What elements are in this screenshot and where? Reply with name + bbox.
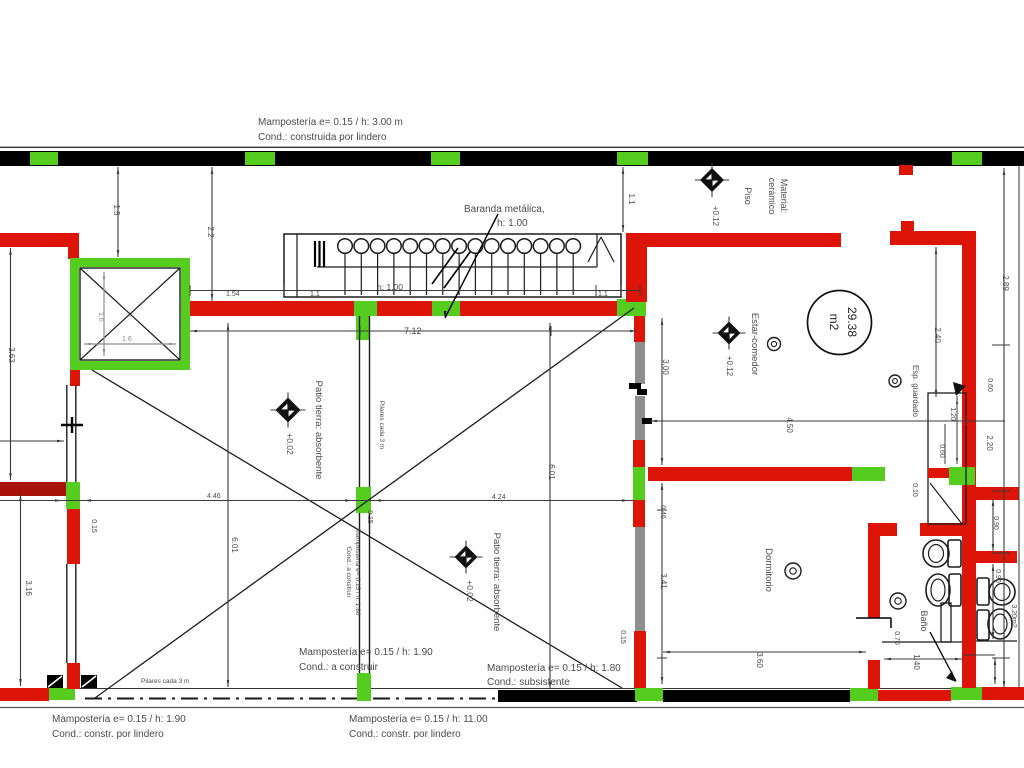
svg-text:Mampostería e= 0.15 / h: 1.80: Mampostería e= 0.15 / h: 1.80: [354, 529, 361, 616]
svg-text:2.89: 2.89: [1001, 275, 1010, 291]
svg-text:Estar-comedor: Estar-comedor: [749, 313, 760, 375]
svg-text:1.5: 1.5: [112, 204, 121, 216]
svg-text:Mampostería e= 0.15 / h: 3.00: Mampostería e= 0.15 / h: 3.00 m: [258, 117, 403, 128]
svg-text:1.6: 1.6: [97, 312, 104, 322]
svg-text:Patio tierra: absorbente: Patio tierra: absorbente: [313, 381, 324, 480]
svg-text:3.00: 3.00: [661, 359, 670, 375]
svg-text:h: 1.00: h: 1.00: [497, 218, 528, 229]
svg-text:2.2: 2.2: [206, 226, 215, 238]
svg-text:Cond.: constr. por lindero: Cond.: constr. por lindero: [52, 729, 164, 740]
svg-text:1.1: 1.1: [627, 193, 636, 205]
svg-text:Piso: Piso: [743, 187, 753, 205]
svg-text:1.6: 1.6: [122, 336, 132, 343]
svg-text:0.15: 0.15: [366, 510, 373, 524]
svg-text:0.60: 0.60: [938, 444, 945, 458]
svg-text:Dormitorio: Dormitorio: [763, 548, 774, 592]
svg-text:Mampostería e= 0.15 / h: 1.80: Mampostería e= 0.15 / h: 1.80: [487, 663, 621, 674]
svg-text:2.40: 2.40: [933, 327, 942, 343]
svg-text:m2: m2: [827, 314, 841, 331]
svg-text:3.20m2: 3.20m2: [1010, 604, 1017, 627]
svg-text:3.16: 3.16: [24, 580, 33, 596]
svg-text:Material:: Material:: [779, 179, 789, 214]
svg-text:1.54: 1.54: [226, 291, 240, 298]
svg-text:Cond.: a construir: Cond.: a construir: [345, 546, 352, 598]
svg-text:Pilares cada 3 m: Pilares cada 3 m: [141, 678, 189, 685]
svg-text:1.20: 1.20: [949, 407, 956, 421]
svg-text:0.60: 0.60: [986, 378, 993, 392]
svg-text:1.1: 1.1: [310, 291, 320, 298]
svg-text:Baño: Baño: [919, 610, 929, 631]
svg-text:0.90: 0.90: [992, 516, 999, 530]
svg-text:3.60: 3.60: [755, 652, 764, 668]
svg-text:29.38: 29.38: [845, 307, 859, 337]
svg-text:1.40: 1.40: [912, 654, 921, 670]
svg-text:Pilares cada 3 m: Pilares cada 3 m: [378, 401, 385, 449]
svg-text:Esp. guardado: Esp. guardado: [911, 365, 920, 418]
svg-text:0.70: 0.70: [893, 631, 900, 645]
svg-text:4.46: 4.46: [207, 493, 221, 500]
svg-text:2.20: 2.20: [985, 435, 994, 451]
svg-text:Patio tierra: absorbente: Patio tierra: absorbente: [491, 533, 502, 632]
svg-text:0.15: 0.15: [619, 630, 626, 644]
svg-text:Cond.: construida por lindero: Cond.: construida por lindero: [258, 132, 387, 143]
svg-text:4.50: 4.50: [785, 417, 794, 433]
svg-text:3.63: 3.63: [7, 347, 16, 363]
svg-text:h: 1.00: h: 1.00: [377, 282, 403, 292]
svg-text:Mampostería e= 0.15 / h: 1.90: Mampostería e= 0.15 / h: 1.90: [299, 647, 433, 658]
svg-text:0.90: 0.90: [994, 569, 1001, 583]
svg-text:Cond.: constr. por lindero: Cond.: constr. por lindero: [349, 729, 461, 740]
svg-text:3.41: 3.41: [659, 573, 668, 589]
svg-text:Mampostería e= 0.15 / h: 1.90: Mampostería e= 0.15 / h: 1.90: [52, 714, 186, 725]
svg-text:0.10: 0.10: [911, 483, 918, 497]
svg-text:1.1: 1.1: [598, 291, 608, 298]
svg-text:4.24: 4.24: [492, 494, 506, 501]
svg-text:+0.12: +0.12: [725, 356, 734, 377]
svg-text:0.15: 0.15: [90, 519, 97, 533]
svg-text:Baranda metálica,: Baranda metálica,: [464, 204, 545, 215]
svg-text:Cond.: a construir: Cond.: a construir: [299, 662, 379, 673]
svg-text:Mampostería e= 0.15 / h: 11.00: Mampostería e= 0.15 / h: 11.00: [349, 714, 488, 725]
svg-text:6.01: 6.01: [547, 464, 556, 480]
svg-text:Cond.: subsistente: Cond.: subsistente: [487, 677, 570, 688]
svg-text:6.01: 6.01: [230, 537, 239, 553]
svg-text:+0.12: +0.12: [711, 206, 720, 227]
svg-text:0.46: 0.46: [659, 505, 666, 519]
svg-text:7.12: 7.12: [404, 326, 422, 336]
svg-text:cerámico: cerámico: [767, 178, 777, 215]
svg-text:+0.02: +0.02: [465, 580, 475, 602]
svg-text:+0.02: +0.02: [285, 433, 295, 455]
